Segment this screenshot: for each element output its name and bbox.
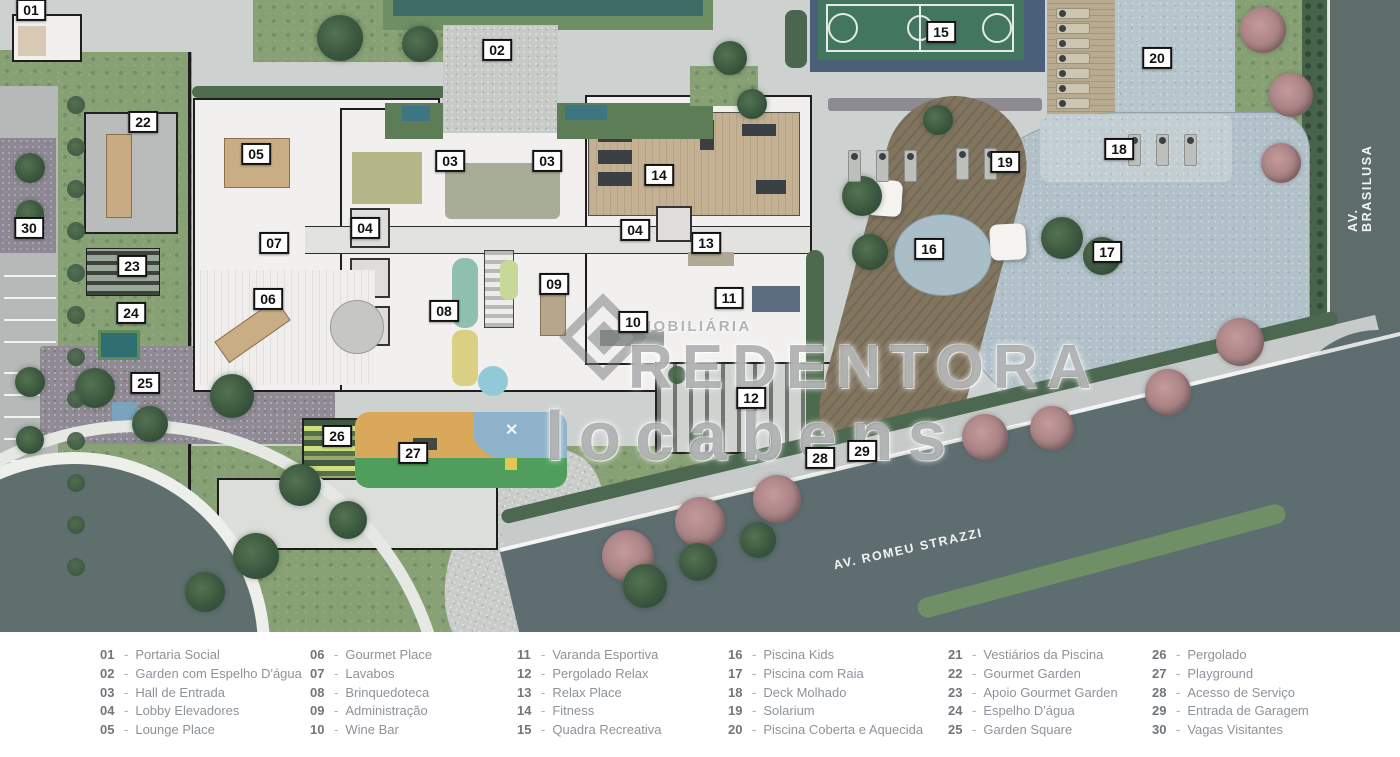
legend-item-19: 19-Solarium — [728, 702, 923, 721]
legend-number: 29 — [1152, 702, 1172, 721]
legend-item-17: 17-Piscina com Raia — [728, 665, 923, 684]
legend-item-04: 04-Lobby Elevadores — [100, 702, 302, 721]
legend-number: 06 — [310, 646, 330, 665]
legend-label: Vestiários da Piscina — [983, 647, 1103, 662]
legend-label: Entrada de Garagem — [1187, 703, 1308, 718]
legend-item-10: 10-Wine Bar — [310, 721, 432, 740]
legend-label: Quadra Recreativa — [552, 722, 661, 737]
plan-marker-07: 07 — [259, 232, 289, 254]
plan-marker-05: 05 — [241, 143, 271, 165]
legend-item-11: 11-Varanda Esportiva — [517, 646, 661, 665]
plan-marker-13: 13 — [691, 232, 721, 254]
legend-column-2: 06-Gourmet Place07-Lavabos08-Brinquedote… — [310, 646, 432, 740]
legend-number: 28 — [1152, 684, 1172, 703]
legend-item-08: 08-Brinquedoteca — [310, 684, 432, 703]
plan-marker-03: 03 — [435, 150, 465, 172]
plan-marker-06: 06 — [253, 288, 283, 310]
plan-marker-20: 20 — [1142, 47, 1172, 69]
plan-marker-04: 04 — [620, 219, 650, 241]
legend-item-03: 03-Hall de Entrada — [100, 684, 302, 703]
legend-label: Pergolado — [1187, 647, 1246, 662]
legend-number: 08 — [310, 684, 330, 703]
legend-label: Fitness — [552, 703, 594, 718]
legend-label: Apoio Gourmet Garden — [983, 685, 1117, 700]
legend-number: 20 — [728, 721, 748, 740]
plan-marker-27: 27 — [398, 442, 428, 464]
plan-marker-25: 25 — [130, 372, 160, 394]
legend-item-01: 01-Portaria Social — [100, 646, 302, 665]
markers-layer: 0102030304040506070809101112131415161718… — [0, 0, 1400, 632]
legend-label: Lounge Place — [135, 722, 215, 737]
legend-column-6: 26-Pergolado27-Playground28-Acesso de Se… — [1152, 646, 1309, 740]
legend: 01-Portaria Social02-Garden com Espelho … — [0, 632, 1400, 757]
legend-item-22: 22-Gourmet Garden — [948, 665, 1118, 684]
legend-item-20: 20-Piscina Coberta e Aquecida — [728, 721, 923, 740]
legend-label: Lobby Elevadores — [135, 703, 239, 718]
legend-column-3: 11-Varanda Esportiva12-Pergolado Relax13… — [517, 646, 661, 740]
legend-item-26: 26-Pergolado — [1152, 646, 1309, 665]
legend-item-14: 14-Fitness — [517, 702, 661, 721]
legend-number: 18 — [728, 684, 748, 703]
legend-number: 09 — [310, 702, 330, 721]
plan-marker-11: 11 — [715, 287, 744, 309]
legend-item-09: 09-Administração — [310, 702, 432, 721]
legend-number: 25 — [948, 721, 968, 740]
legend-label: Lavabos — [345, 666, 394, 681]
legend-number: 13 — [517, 684, 537, 703]
legend-number: 11 — [517, 646, 537, 665]
legend-label: Wine Bar — [345, 722, 398, 737]
watermark-brand-main: REDENTORA — [628, 332, 1101, 403]
legend-label: Vagas Visitantes — [1187, 722, 1283, 737]
legend-number: 04 — [100, 702, 120, 721]
legend-label: Solarium — [763, 703, 814, 718]
legend-label: Relax Place — [552, 685, 621, 700]
legend-label: Espelho D'água — [983, 703, 1074, 718]
plan-marker-23: 23 — [117, 255, 147, 277]
plan-marker-01: 01 — [16, 0, 46, 21]
legend-label: Piscina com Raia — [763, 666, 863, 681]
legend-column-1: 01-Portaria Social02-Garden com Espelho … — [100, 646, 302, 740]
legend-label: Portaria Social — [135, 647, 220, 662]
legend-number: 12 — [517, 665, 537, 684]
plan-marker-02: 02 — [482, 39, 512, 61]
plan-marker-22: 22 — [128, 111, 158, 133]
legend-item-12: 12-Pergolado Relax — [517, 665, 661, 684]
legend-item-06: 06-Gourmet Place — [310, 646, 432, 665]
legend-number: 02 — [100, 665, 120, 684]
legend-item-30: 30-Vagas Visitantes — [1152, 721, 1309, 740]
legend-label: Gourmet Place — [345, 647, 432, 662]
legend-item-18: 18-Deck Molhado — [728, 684, 923, 703]
legend-number: 30 — [1152, 721, 1172, 740]
legend-number: 24 — [948, 702, 968, 721]
legend-label: Gourmet Garden — [983, 666, 1081, 681]
legend-item-29: 29-Entrada de Garagem — [1152, 702, 1309, 721]
plan-marker-10: 10 — [618, 311, 648, 333]
legend-label: Piscina Coberta e Aquecida — [763, 722, 923, 737]
legend-item-23: 23-Apoio Gourmet Garden — [948, 684, 1118, 703]
legend-number: 15 — [517, 721, 537, 740]
legend-label: Piscina Kids — [763, 647, 834, 662]
legend-label: Deck Molhado — [763, 685, 846, 700]
legend-label: Brinquedoteca — [345, 685, 429, 700]
legend-number: 26 — [1152, 646, 1172, 665]
legend-item-25: 25-Garden Square — [948, 721, 1118, 740]
legend-number: 07 — [310, 665, 330, 684]
legend-number: 23 — [948, 684, 968, 703]
plan-marker-12: 12 — [736, 387, 766, 409]
plan-marker-26: 26 — [322, 425, 352, 447]
plan-marker-09: 09 — [539, 273, 569, 295]
legend-number: 16 — [728, 646, 748, 665]
plan-marker-30: 30 — [14, 217, 44, 239]
legend-label: Playground — [1187, 666, 1253, 681]
plan-marker-16: 16 — [914, 238, 944, 260]
legend-item-13: 13-Relax Place — [517, 684, 661, 703]
legend-item-05: 05-Lounge Place — [100, 721, 302, 740]
legend-label: Garden Square — [983, 722, 1072, 737]
legend-label: Hall de Entrada — [135, 685, 225, 700]
legend-column-5: 21-Vestiários da Piscina22-Gourmet Garde… — [948, 646, 1118, 740]
legend-label: Administração — [345, 703, 427, 718]
legend-item-21: 21-Vestiários da Piscina — [948, 646, 1118, 665]
plan-marker-17: 17 — [1092, 241, 1122, 263]
plan-marker-14: 14 — [644, 164, 674, 186]
legend-number: 21 — [948, 646, 968, 665]
legend-number: 17 — [728, 665, 748, 684]
legend-item-07: 07-Lavabos — [310, 665, 432, 684]
legend-label: Varanda Esportiva — [552, 647, 658, 662]
map-area: ✕ AV. ROMEU STRAZZI AV. BRASILUSA IMOBIL… — [0, 0, 1400, 632]
site-plan-image: ✕ AV. ROMEU STRAZZI AV. BRASILUSA IMOBIL… — [0, 0, 1400, 757]
legend-label: Garden com Espelho D'água — [135, 666, 302, 681]
legend-item-27: 27-Playground — [1152, 665, 1309, 684]
legend-item-15: 15-Quadra Recreativa — [517, 721, 661, 740]
legend-column-4: 16-Piscina Kids17-Piscina com Raia18-Dec… — [728, 646, 923, 740]
legend-number: 01 — [100, 646, 120, 665]
street-name-brasilusa: AV. BRASILUSA — [1346, 145, 1374, 232]
legend-number: 05 — [100, 721, 120, 740]
plan-marker-15: 15 — [926, 21, 956, 43]
plan-marker-18: 18 — [1104, 138, 1134, 160]
legend-number: 19 — [728, 702, 748, 721]
plan-marker-08: 08 — [429, 300, 459, 322]
plan-marker-24: 24 — [116, 302, 146, 324]
legend-item-16: 16-Piscina Kids — [728, 646, 923, 665]
legend-item-24: 24-Espelho D'água — [948, 702, 1118, 721]
legend-number: 14 — [517, 702, 537, 721]
legend-number: 27 — [1152, 665, 1172, 684]
legend-item-28: 28-Acesso de Serviço — [1152, 684, 1309, 703]
legend-number: 22 — [948, 665, 968, 684]
legend-number: 03 — [100, 684, 120, 703]
legend-number: 10 — [310, 721, 330, 740]
legend-label: Pergolado Relax — [552, 666, 648, 681]
plan-marker-04: 04 — [350, 217, 380, 239]
plan-marker-28: 28 — [805, 447, 835, 469]
plan-marker-19: 19 — [990, 151, 1020, 173]
legend-item-02: 02-Garden com Espelho D'água — [100, 665, 302, 684]
plan-marker-03: 03 — [532, 150, 562, 172]
plan-marker-29: 29 — [847, 440, 877, 462]
legend-label: Acesso de Serviço — [1187, 685, 1295, 700]
